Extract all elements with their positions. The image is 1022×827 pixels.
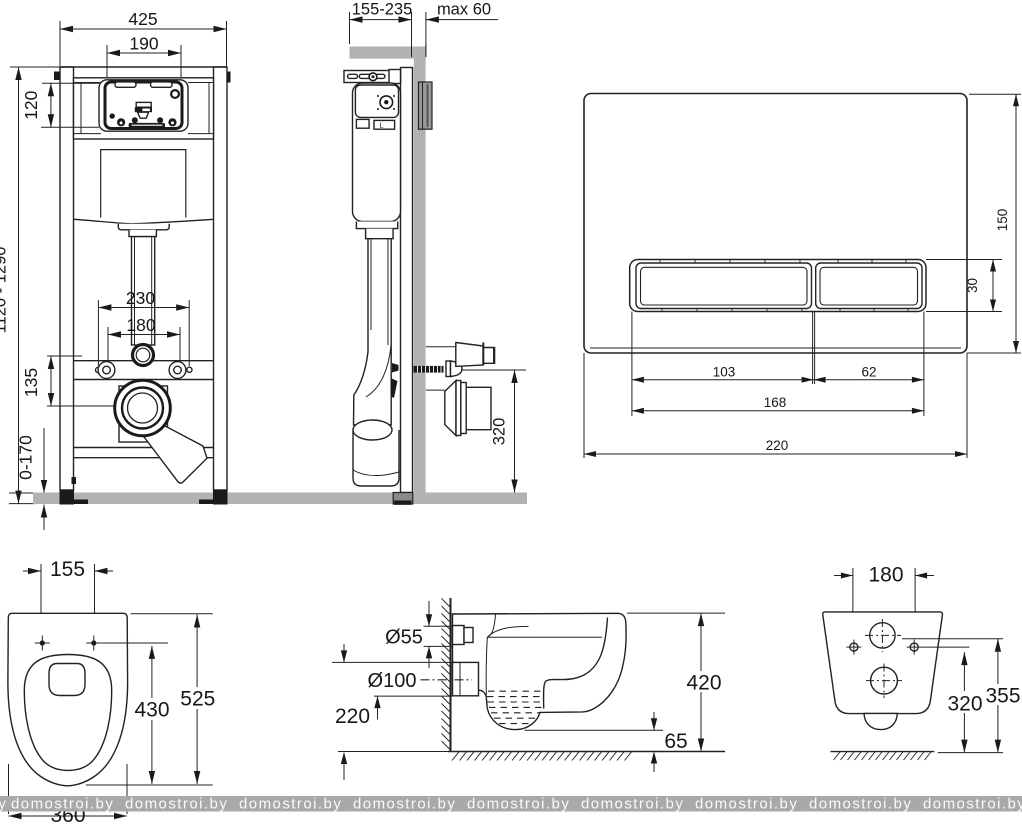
svg-text:domostroi.by: domostroi.by [581, 796, 684, 813]
svg-text:1120 - 1290: 1120 - 1290 [0, 247, 10, 334]
svg-text:domostroi.by: domostroi.by [695, 796, 798, 813]
svg-text:155-235: 155-235 [352, 1, 413, 19]
svg-text:168: 168 [764, 395, 787, 410]
svg-text:Ø55: Ø55 [385, 627, 423, 649]
svg-text:120: 120 [21, 90, 41, 119]
svg-text:domostroi.by: domostroi.by [467, 796, 570, 813]
svg-text:0-170: 0-170 [16, 435, 36, 480]
svg-text:180: 180 [868, 564, 903, 587]
svg-text:30: 30 [965, 278, 980, 293]
svg-text:max 60: max 60 [437, 1, 491, 19]
svg-text:355: 355 [985, 684, 1020, 707]
svg-text:103: 103 [713, 364, 736, 379]
svg-text:domostroi.by: domostroi.by [239, 796, 342, 813]
svg-text:220: 220 [335, 705, 370, 728]
svg-text:420: 420 [686, 672, 721, 695]
svg-text:155: 155 [50, 558, 85, 581]
svg-text:320: 320 [491, 418, 509, 446]
svg-text:domostroi.by: domostroi.by [353, 796, 456, 813]
svg-text:Ø100: Ø100 [368, 670, 417, 692]
svg-text:525: 525 [180, 688, 215, 711]
svg-text:domostroi.by: domostroi.by [0, 796, 7, 813]
svg-text:320: 320 [947, 693, 982, 716]
svg-text:domostroi.by: domostroi.by [923, 796, 1022, 813]
svg-text:150: 150 [995, 209, 1010, 232]
svg-text:135: 135 [21, 368, 41, 397]
svg-text:domostroi.by: domostroi.by [809, 796, 912, 813]
svg-text:L: L [379, 120, 383, 129]
svg-text:62: 62 [861, 364, 876, 379]
svg-text:190: 190 [129, 34, 158, 54]
svg-text:220: 220 [766, 438, 789, 453]
svg-text:425: 425 [128, 9, 157, 29]
svg-text:230: 230 [126, 288, 155, 308]
svg-text:65: 65 [664, 730, 687, 753]
svg-text:domostroi.by: domostroi.by [125, 796, 228, 813]
svg-text:430: 430 [134, 699, 169, 722]
svg-text:domostroi.by: domostroi.by [11, 796, 114, 813]
svg-text:180: 180 [126, 315, 155, 335]
